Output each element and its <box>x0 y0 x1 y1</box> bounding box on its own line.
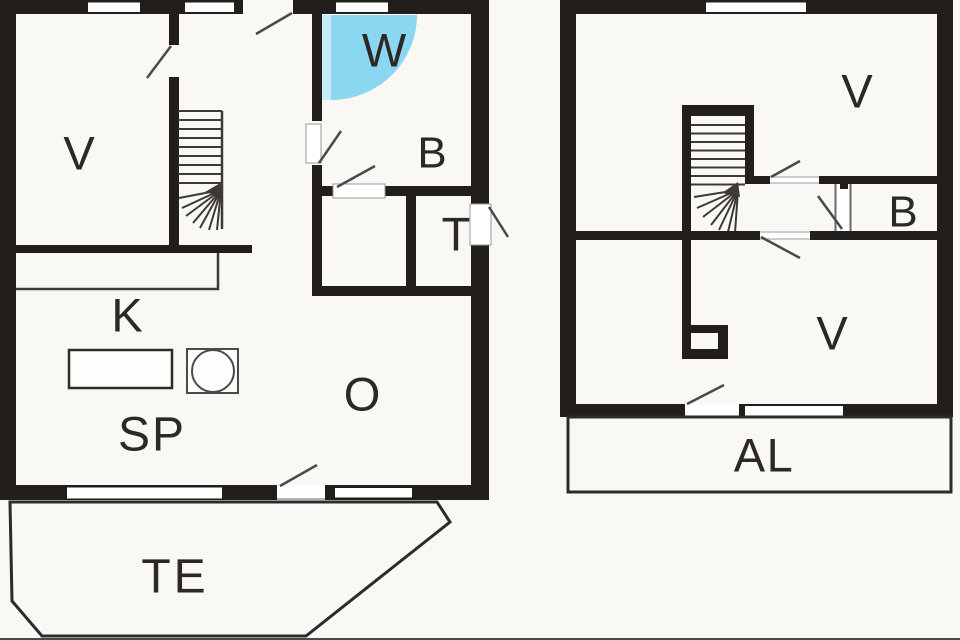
svg-text:V: V <box>816 307 848 360</box>
svg-text:K: K <box>111 289 142 342</box>
svg-text:TE: TE <box>141 551 208 604</box>
svg-text:SP: SP <box>118 409 186 462</box>
svg-text:B: B <box>888 188 917 237</box>
svg-text:V: V <box>841 65 873 118</box>
svg-text:W: W <box>362 24 407 77</box>
svg-text:T: T <box>442 208 471 261</box>
svg-text:O: O <box>344 368 381 421</box>
svg-text:B: B <box>417 129 446 178</box>
svg-text:AL: AL <box>734 429 795 482</box>
svg-text:V: V <box>63 127 95 180</box>
